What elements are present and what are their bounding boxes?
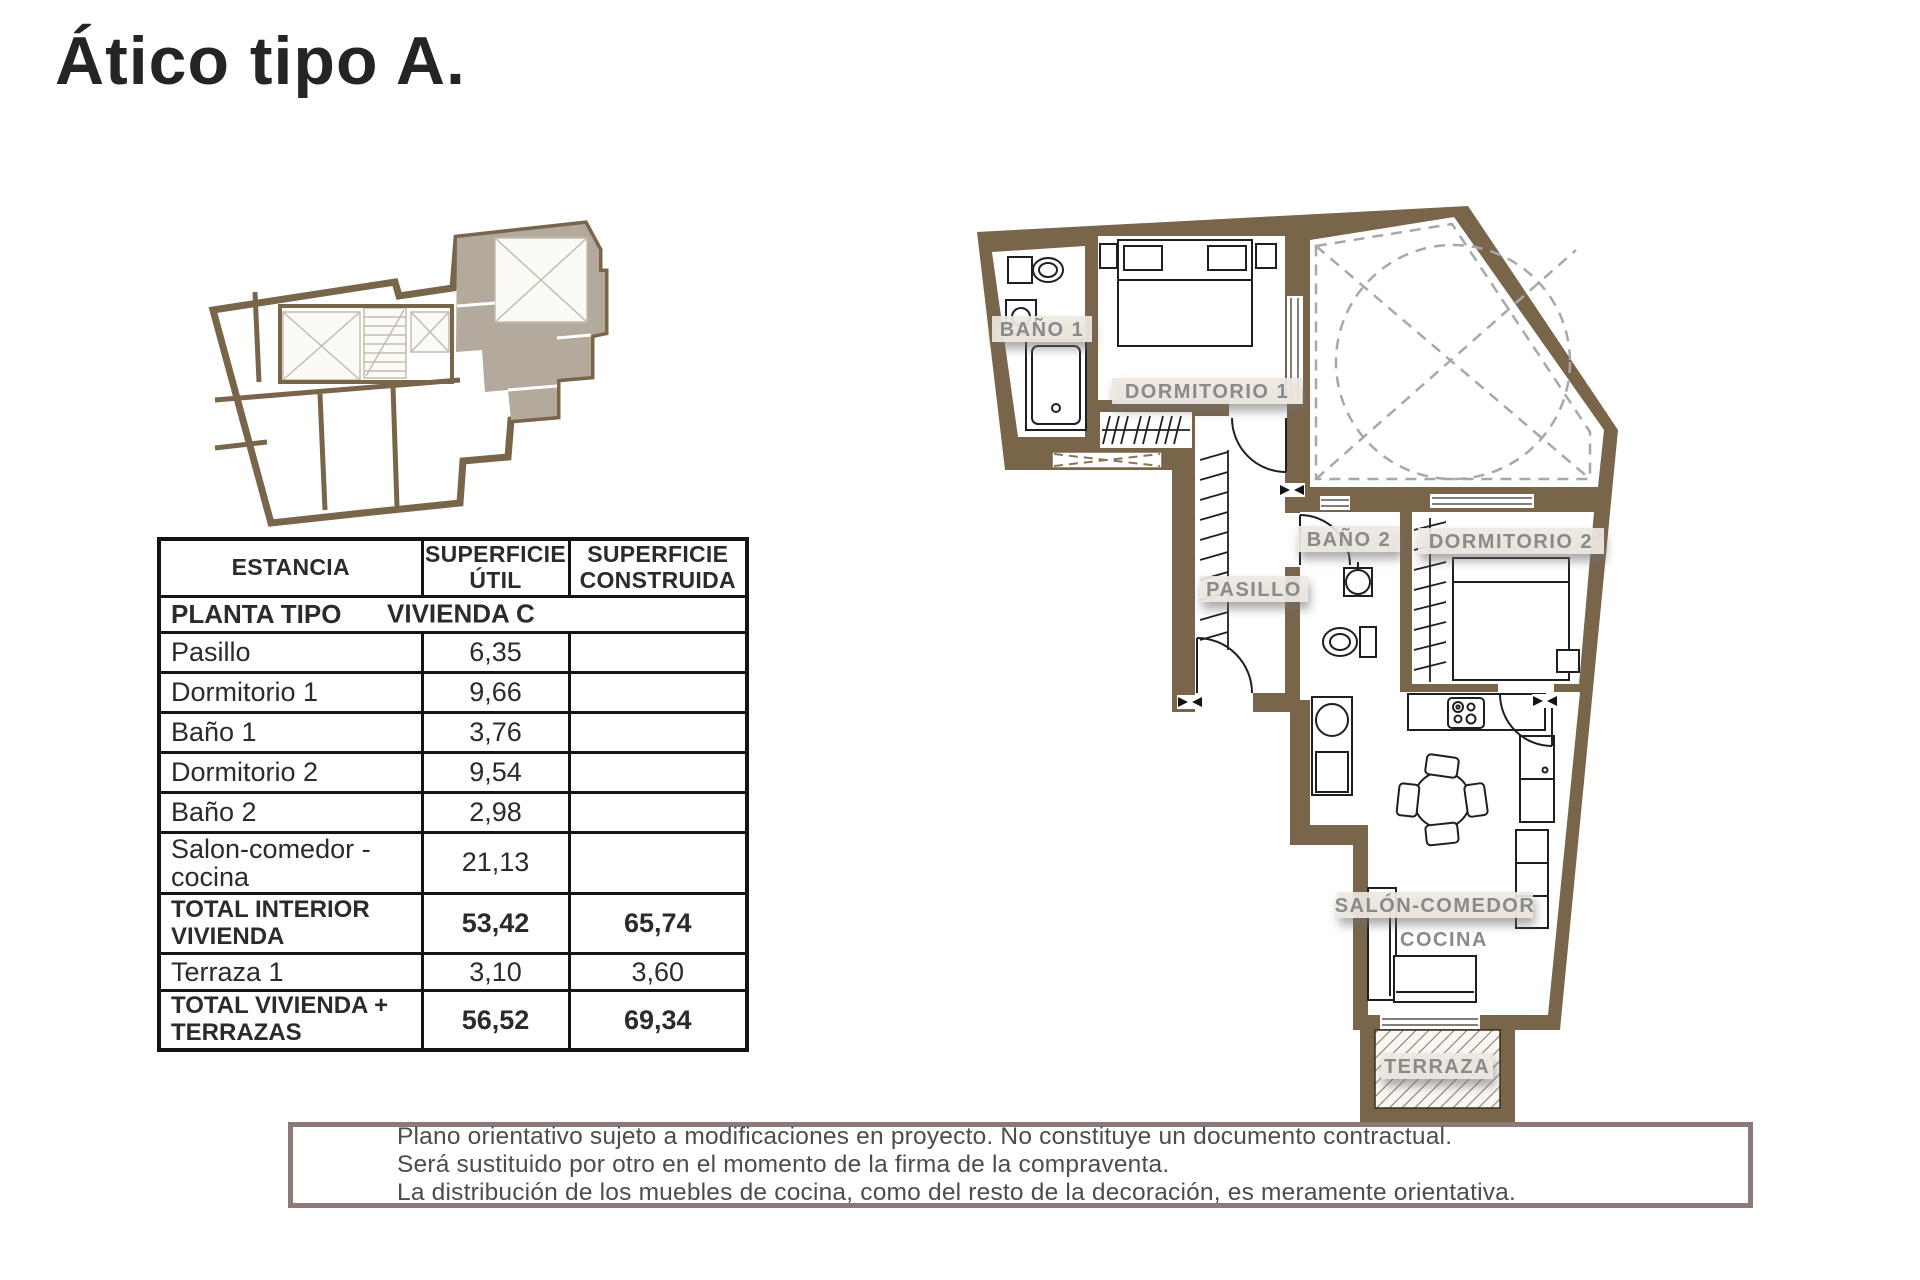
table-row: Terraza 1 3,10 3,60 [159,954,747,991]
room-name: Baño 2 [159,792,422,832]
table-row: Salon-comedor - cocina 21,13 [159,832,747,894]
table-row: Dormitorio 2 9,54 [159,752,747,792]
table-row: Pasillo 6,35 [159,632,747,672]
shower-bano1 [1026,340,1086,430]
room-util: 6,35 [422,632,569,672]
room-util: 3,10 [422,954,569,991]
room-construida: 3,60 [569,954,747,991]
room-util: 3,76 [422,712,569,752]
header-superficie-util: SUPERFICIE ÚTIL [422,539,569,596]
table-row: Baño 1 3,76 [159,712,747,752]
header-estancia: ESTANCIA [159,539,422,596]
room-util: 2,98 [422,792,569,832]
overview-floorplan [195,210,610,530]
room-util: 9,54 [422,752,569,792]
room-name: Dormitorio 1 [159,672,422,712]
toilet-bano2 [1323,627,1376,657]
areas-table: ESTANCIA SUPERFICIE ÚTIL SUPERFICIE CONS… [157,537,749,1052]
room-name: Baño 1 [159,712,422,752]
room-name: Pasillo [159,632,422,672]
table-header-row: ESTANCIA SUPERFICIE ÚTIL SUPERFICIE CONS… [159,539,747,596]
total-construida: 69,34 [569,991,747,1050]
room-construida [569,832,747,894]
room-construida [569,712,747,752]
page: Ático tipo A. [0,0,1920,1280]
main-floorplan: BAÑO 1 DORMITORIO 1 PASILLO BAÑO 2 DORMI… [960,200,1630,1135]
section-planta-tipo: PLANTA TIPO [171,599,341,629]
label-terraza: TERRAZA [1381,1053,1493,1079]
kitchen-left-unit [1312,697,1352,795]
label-dormitorio1: DORMITORIO 1 [1112,378,1302,404]
disclaimer-line: Será sustituido por otro en el momento d… [397,1151,1748,1179]
room-name: Salon-comedor - cocina [159,832,422,894]
bed-dormitorio2 [1453,558,1579,680]
room-construida [569,752,747,792]
svg-text:PASILLO: PASILLO [1206,579,1302,601]
svg-text:DORMITORIO 1: DORMITORIO 1 [1125,381,1289,403]
total-row: TOTAL VIVIENDA + TERRAZAS 56,52 69,34 [159,991,747,1050]
label-pasillo: PASILLO [1200,576,1308,602]
svg-text:DORMITORIO 2: DORMITORIO 2 [1429,531,1593,553]
room-util: 21,13 [422,832,569,894]
label-bano1: BAÑO 1 [992,316,1092,342]
section-row: PLANTA TIPO VIVIENDA C [159,596,747,632]
total-name: TOTAL VIVIENDA + TERRAZAS [159,991,422,1050]
section-cell: PLANTA TIPO VIVIENDA C [159,596,747,632]
room-name: Dormitorio 2 [159,752,422,792]
table-row: Dormitorio 1 9,66 [159,672,747,712]
total-util: 56,52 [422,991,569,1050]
kitchen-counter [1408,694,1545,730]
total-row: TOTAL INTERIOR VIVIENDA 53,42 65,74 [159,894,747,954]
label-dormitorio2: DORMITORIO 2 [1418,528,1604,554]
page-title: Ático tipo A. [55,22,466,100]
total-name: TOTAL INTERIOR VIVIENDA [159,894,422,954]
room-construida [569,672,747,712]
svg-text:SALÓN-COMEDOR: SALÓN-COMEDOR [1335,893,1536,917]
room-name: Terraza 1 [159,954,422,991]
sink-bano2 [1344,562,1372,596]
bed-dormitorio1 [1100,240,1276,346]
svg-text:COCINA: COCINA [1400,929,1488,951]
svg-text:BAÑO 1: BAÑO 1 [1000,318,1085,341]
svg-text:TERRAZA: TERRAZA [1384,1056,1490,1078]
disclaimer-line: La distribución de los muebles de cocina… [397,1179,1748,1207]
disclaimer-line: Plano orientativo sujeto a modificacione… [397,1123,1748,1151]
room-construida [569,792,747,832]
total-util: 53,42 [422,894,569,954]
total-construida: 65,74 [569,894,747,954]
label-bano2: BAÑO 2 [1298,526,1400,552]
svg-text:BAÑO 2: BAÑO 2 [1307,528,1392,551]
dashed-band [1052,452,1162,468]
header-superficie-construida: SUPERFICIE CONSTRUIDA [569,539,747,596]
section-vivienda: VIVIENDA C [387,599,535,630]
room-util: 9,66 [422,672,569,712]
table-row: Baño 2 2,98 [159,792,747,832]
room-construida [569,632,747,672]
disclaimer-box: Plano orientativo sujeto a modificacione… [288,1122,1753,1208]
